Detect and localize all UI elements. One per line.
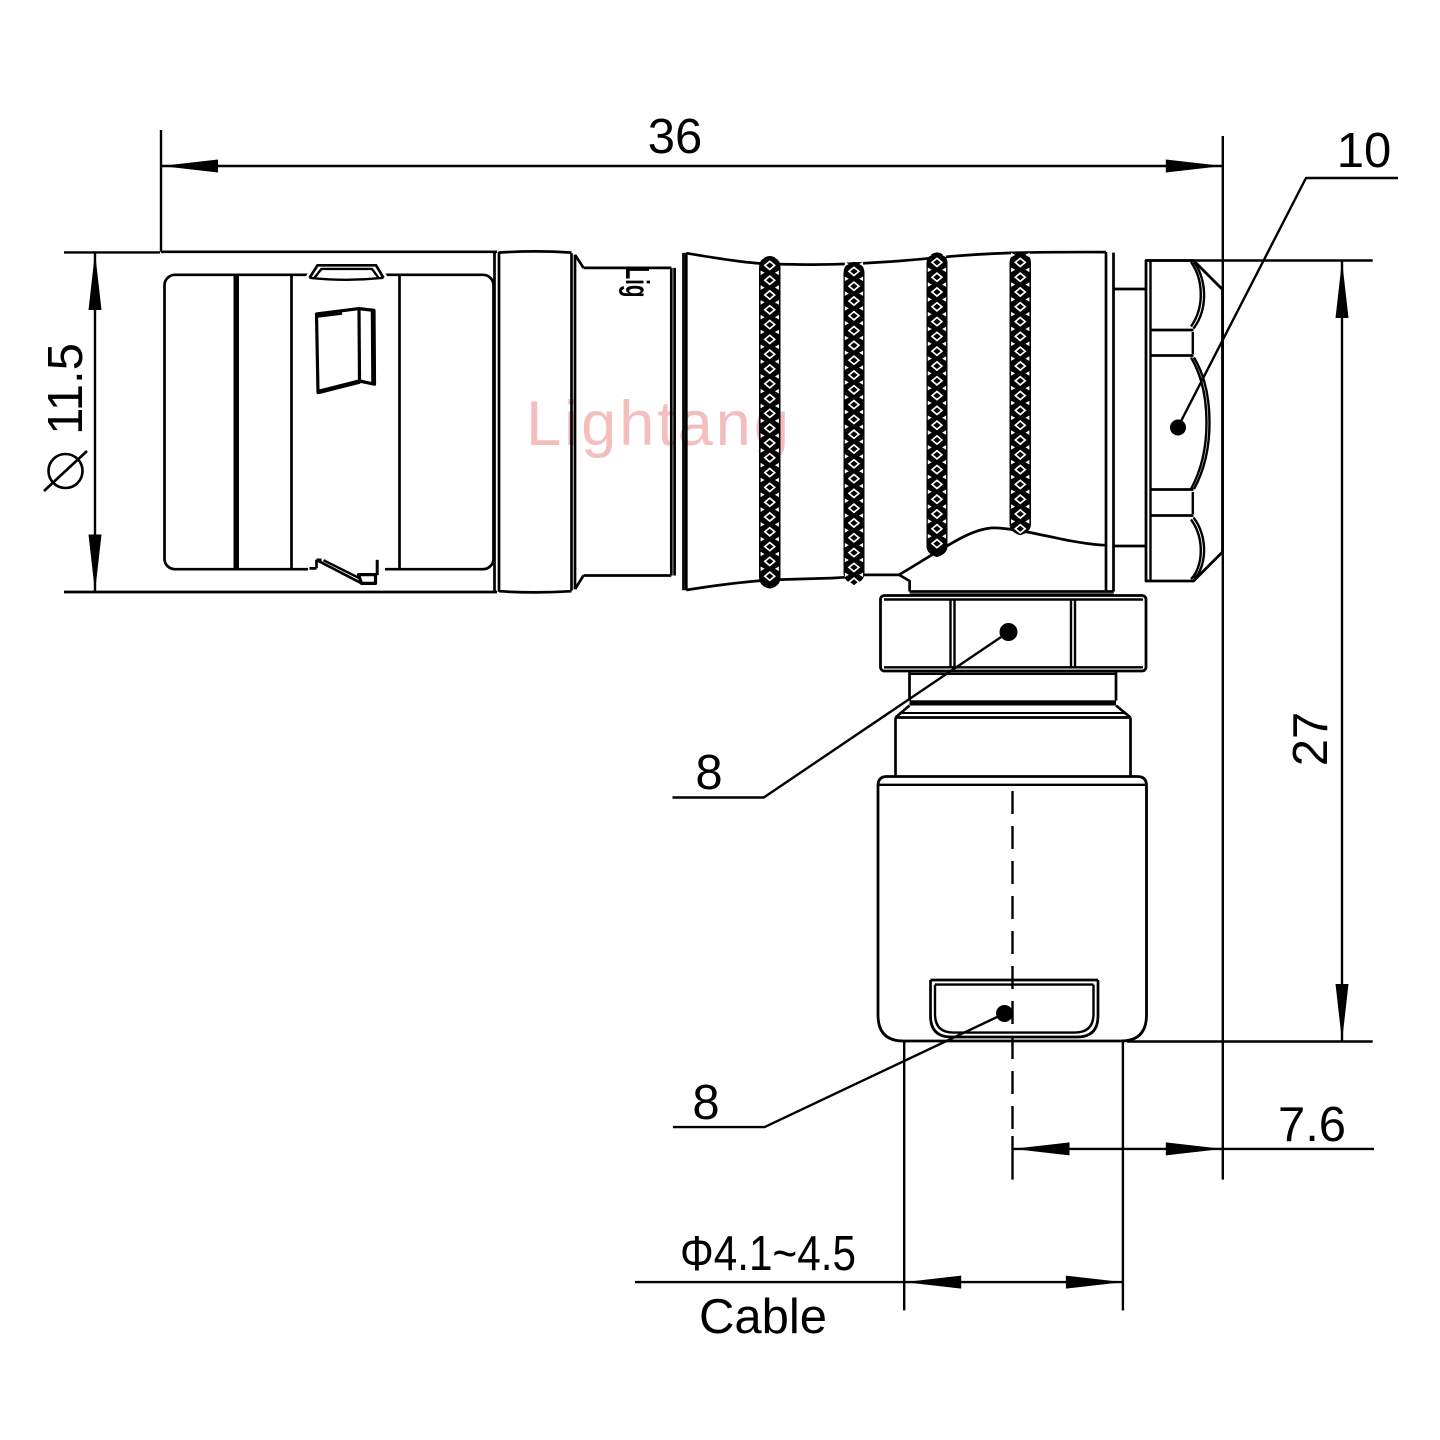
svg-text:36: 36 [648,110,703,164]
svg-text:7.6: 7.6 [1278,1098,1346,1152]
svg-text:8: 8 [695,746,722,800]
svg-text:27: 27 [1284,712,1338,767]
svg-text:8: 8 [692,1076,719,1130]
svg-text:Lightang: Lightang [526,389,792,459]
svg-text:10: 10 [1337,124,1392,178]
svg-text:Cable: Cable [699,1290,827,1344]
svg-text:Lig: Lig [619,267,656,298]
svg-text:Φ4.1~4.5: Φ4.1~4.5 [680,1227,856,1281]
svg-text:11.5: 11.5 [39,343,93,435]
